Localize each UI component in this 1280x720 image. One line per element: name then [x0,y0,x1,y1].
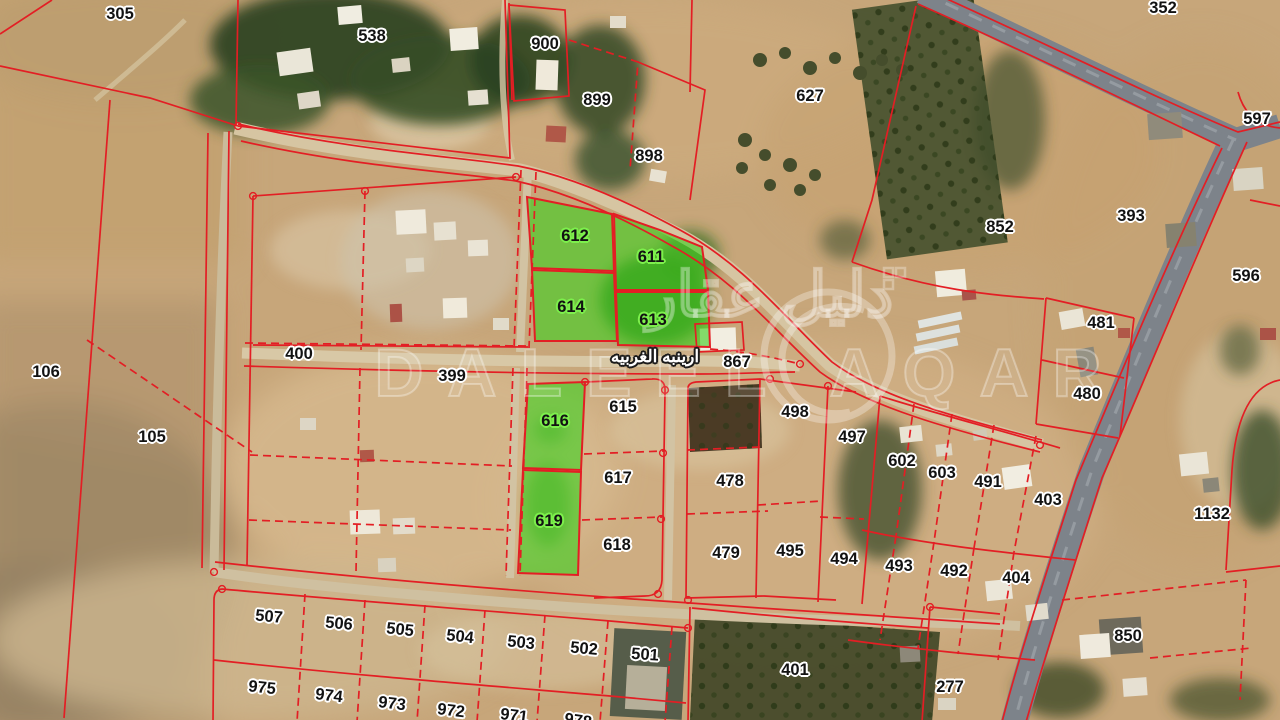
parcel-label-852: 852 [986,219,1014,236]
parcel-label-480: 480 [1073,386,1101,403]
parcel-label-481: 481 [1087,315,1115,332]
parcel-label-616: 616 [541,413,569,430]
parcel-label-973: 973 [377,694,406,714]
parcel-label-277: 277 [936,679,964,696]
parcel-label-502: 502 [570,640,599,659]
parcel-label-492: 492 [940,563,968,580]
parcel-label-493: 493 [885,558,913,575]
parcel-label-352: 352 [1149,0,1177,16]
parcel-label-404: 404 [1002,570,1030,587]
parcel-label-611: 611 [638,249,665,266]
parcel-label-538: 538 [358,28,386,45]
parcel-label-501: 501 [631,646,660,664]
parcel-label-399: 399 [438,368,466,385]
parcel-label-498: 498 [781,404,809,421]
parcel-label-105: 105 [138,429,166,446]
parcel-label-618: 618 [603,537,631,554]
parcel-label-401: 401 [781,662,809,679]
parcel-label-494: 494 [830,551,858,568]
parcel-label-615: 615 [609,399,637,416]
parcel-label-491: 491 [974,474,1002,491]
map-canvas[interactable]: دليل عقار DALEEL AQAR ارينبه الغربيه 305… [0,0,1280,720]
parcel-label-106: 106 [32,364,60,381]
street-name-label: ارينبه الغربيه [611,347,699,367]
parcel-label-505: 505 [385,620,414,639]
parcel-label-478: 478 [716,473,744,490]
parcel-label-602: 602 [888,453,916,470]
parcel-label-627: 627 [796,88,824,105]
parcel-label-619: 619 [535,513,563,530]
parcel-label-1132: 1132 [1194,506,1230,523]
parcel-label-506: 506 [325,615,354,634]
parcel-label-393: 393 [1117,208,1145,225]
parcel-label-479: 479 [712,545,740,562]
parcel-label-403: 403 [1034,492,1062,509]
parcel-label-495: 495 [776,543,804,560]
parcel-label-504: 504 [445,627,474,646]
parcel-label-898: 898 [635,148,663,165]
parcel-label-867: 867 [723,354,751,371]
parcel-label-503: 503 [506,633,535,652]
parcel-label-596: 596 [1232,268,1260,285]
parcel-label-972: 972 [436,701,465,720]
parcel-label-603: 603 [928,465,956,482]
parcel-label-400: 400 [285,346,313,363]
parcel-label-850: 850 [1114,628,1142,645]
parcel-label-974: 974 [314,686,343,706]
parcel-label-971: 971 [499,706,528,720]
parcel-label-978: 978 [563,711,593,720]
parcel-label-597: 597 [1243,111,1271,128]
parcel-label-507: 507 [255,608,284,627]
parcel-label-614: 614 [557,299,585,316]
parcel-label-613: 613 [639,312,667,329]
parcel-label-617: 617 [604,470,632,487]
parcel-label-899: 899 [583,92,611,109]
parcel-label-497: 497 [838,429,866,446]
parcel-label-975: 975 [247,678,276,697]
parcel-label-612: 612 [561,228,589,245]
parcel-label-305: 305 [106,6,134,23]
parcel-label-900: 900 [531,36,559,53]
